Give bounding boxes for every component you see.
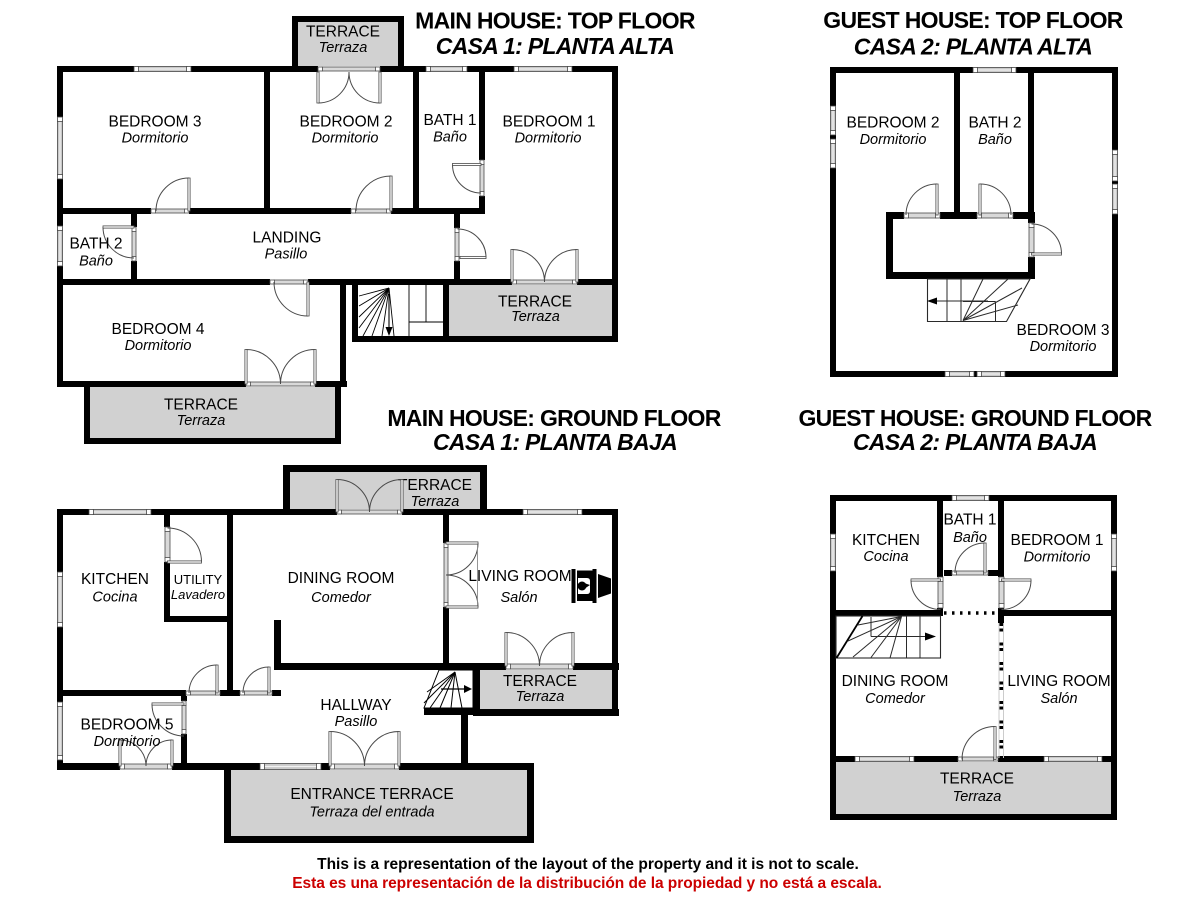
svg-text:Terraza: Terraza bbox=[177, 413, 226, 429]
svg-text:Comedor: Comedor bbox=[865, 691, 926, 707]
svg-text:BEDROOM 5: BEDROOM 5 bbox=[80, 717, 173, 734]
svg-text:DINING ROOM: DINING ROOM bbox=[288, 570, 395, 587]
svg-text:Dormitorio: Dormitorio bbox=[94, 734, 161, 750]
svg-text:Terraza: Terraza bbox=[511, 309, 560, 325]
svg-text:BATH 2: BATH 2 bbox=[69, 236, 122, 253]
svg-text:BATH 2: BATH 2 bbox=[968, 115, 1021, 132]
svg-text:Baño: Baño bbox=[953, 530, 987, 546]
svg-text:BEDROOM 3: BEDROOM 3 bbox=[108, 113, 201, 130]
svg-text:MAIN HOUSE: TOP FLOOR: MAIN HOUSE: TOP FLOOR bbox=[415, 8, 696, 34]
svg-text:LIVING ROOM: LIVING ROOM bbox=[1007, 673, 1110, 690]
svg-text:TERRACE: TERRACE bbox=[398, 477, 472, 494]
svg-text:CASA 1: PLANTA ALTA: CASA 1: PLANTA ALTA bbox=[436, 33, 674, 59]
svg-text:CASA 2: PLANTA ALTA: CASA 2: PLANTA ALTA bbox=[854, 34, 1092, 60]
svg-text:ENTRANCE TERRACE: ENTRANCE TERRACE bbox=[290, 786, 453, 803]
svg-text:Terraza: Terraza bbox=[411, 494, 460, 510]
svg-text:Terraza del entrada: Terraza del entrada bbox=[309, 805, 434, 821]
svg-text:LIVING ROOM: LIVING ROOM bbox=[468, 568, 571, 585]
svg-text:Dormitorio: Dormitorio bbox=[1024, 550, 1091, 566]
svg-text:HALLWAY: HALLWAY bbox=[320, 697, 391, 714]
svg-text:TERRACE: TERRACE bbox=[164, 397, 238, 414]
svg-text:Terraza: Terraza bbox=[319, 40, 368, 56]
svg-text:TERRACE: TERRACE bbox=[498, 294, 572, 311]
svg-text:Pasillo: Pasillo bbox=[335, 714, 378, 730]
svg-text:Cocina: Cocina bbox=[863, 549, 908, 565]
svg-text:MAIN HOUSE: GROUND FLOOR: MAIN HOUSE: GROUND FLOOR bbox=[387, 405, 721, 431]
svg-text:Baño: Baño bbox=[433, 130, 467, 146]
svg-text:Salón: Salón bbox=[500, 590, 537, 606]
svg-text:GUEST HOUSE: TOP FLOOR: GUEST HOUSE: TOP FLOOR bbox=[823, 7, 1123, 33]
svg-text:GUEST HOUSE: GROUND FLOOR: GUEST HOUSE: GROUND FLOOR bbox=[798, 405, 1152, 431]
svg-text:BEDROOM 1: BEDROOM 1 bbox=[1010, 532, 1103, 549]
svg-text:Terraza: Terraza bbox=[516, 689, 565, 705]
svg-text:Comedor: Comedor bbox=[311, 590, 372, 606]
svg-text:Dormitorio: Dormitorio bbox=[312, 131, 379, 147]
svg-text:KITCHEN: KITCHEN bbox=[852, 532, 920, 549]
svg-text:Cocina: Cocina bbox=[92, 590, 137, 606]
svg-text:CASA 2: PLANTA BAJA: CASA 2: PLANTA BAJA bbox=[853, 429, 1097, 455]
svg-text:Dormitorio: Dormitorio bbox=[515, 131, 582, 147]
svg-text:BEDROOM 2: BEDROOM 2 bbox=[299, 113, 392, 130]
svg-text:BATH 1: BATH 1 bbox=[423, 112, 476, 129]
svg-text:Dormitorio: Dormitorio bbox=[1030, 339, 1097, 355]
svg-text:LANDING: LANDING bbox=[253, 230, 322, 247]
svg-text:BEDROOM 1: BEDROOM 1 bbox=[502, 113, 595, 130]
svg-text:KITCHEN: KITCHEN bbox=[81, 571, 149, 588]
svg-text:UTILITY: UTILITY bbox=[174, 572, 223, 587]
svg-text:Terraza: Terraza bbox=[953, 789, 1002, 805]
svg-text:Esta es una representación de: Esta es una representación de la distrib… bbox=[292, 875, 881, 892]
svg-text:Baño: Baño bbox=[978, 132, 1012, 148]
svg-text:Dormitorio: Dormitorio bbox=[860, 132, 927, 148]
svg-text:TERRACE: TERRACE bbox=[940, 771, 1014, 788]
svg-text:Salón: Salón bbox=[1040, 691, 1077, 707]
svg-text:Dormitorio: Dormitorio bbox=[125, 338, 192, 354]
svg-text:BEDROOM 4: BEDROOM 4 bbox=[111, 321, 204, 338]
svg-text:BATH 1: BATH 1 bbox=[943, 512, 996, 529]
svg-text:TERRACE: TERRACE bbox=[503, 673, 577, 690]
svg-text:Lavadero: Lavadero bbox=[171, 587, 225, 602]
svg-text:BEDROOM 2: BEDROOM 2 bbox=[846, 115, 939, 132]
svg-text:Pasillo: Pasillo bbox=[265, 247, 308, 263]
svg-text:TERRACE: TERRACE bbox=[306, 24, 380, 41]
svg-text:BEDROOM 3: BEDROOM 3 bbox=[1016, 322, 1109, 339]
svg-text:DINING ROOM: DINING ROOM bbox=[842, 673, 949, 690]
svg-text:Baño: Baño bbox=[79, 253, 113, 269]
svg-text:Dormitorio: Dormitorio bbox=[122, 131, 189, 147]
svg-text:CASA 1: PLANTA BAJA: CASA 1: PLANTA BAJA bbox=[433, 429, 677, 455]
svg-text:This is a representation of th: This is a representation of the layout o… bbox=[317, 856, 859, 873]
